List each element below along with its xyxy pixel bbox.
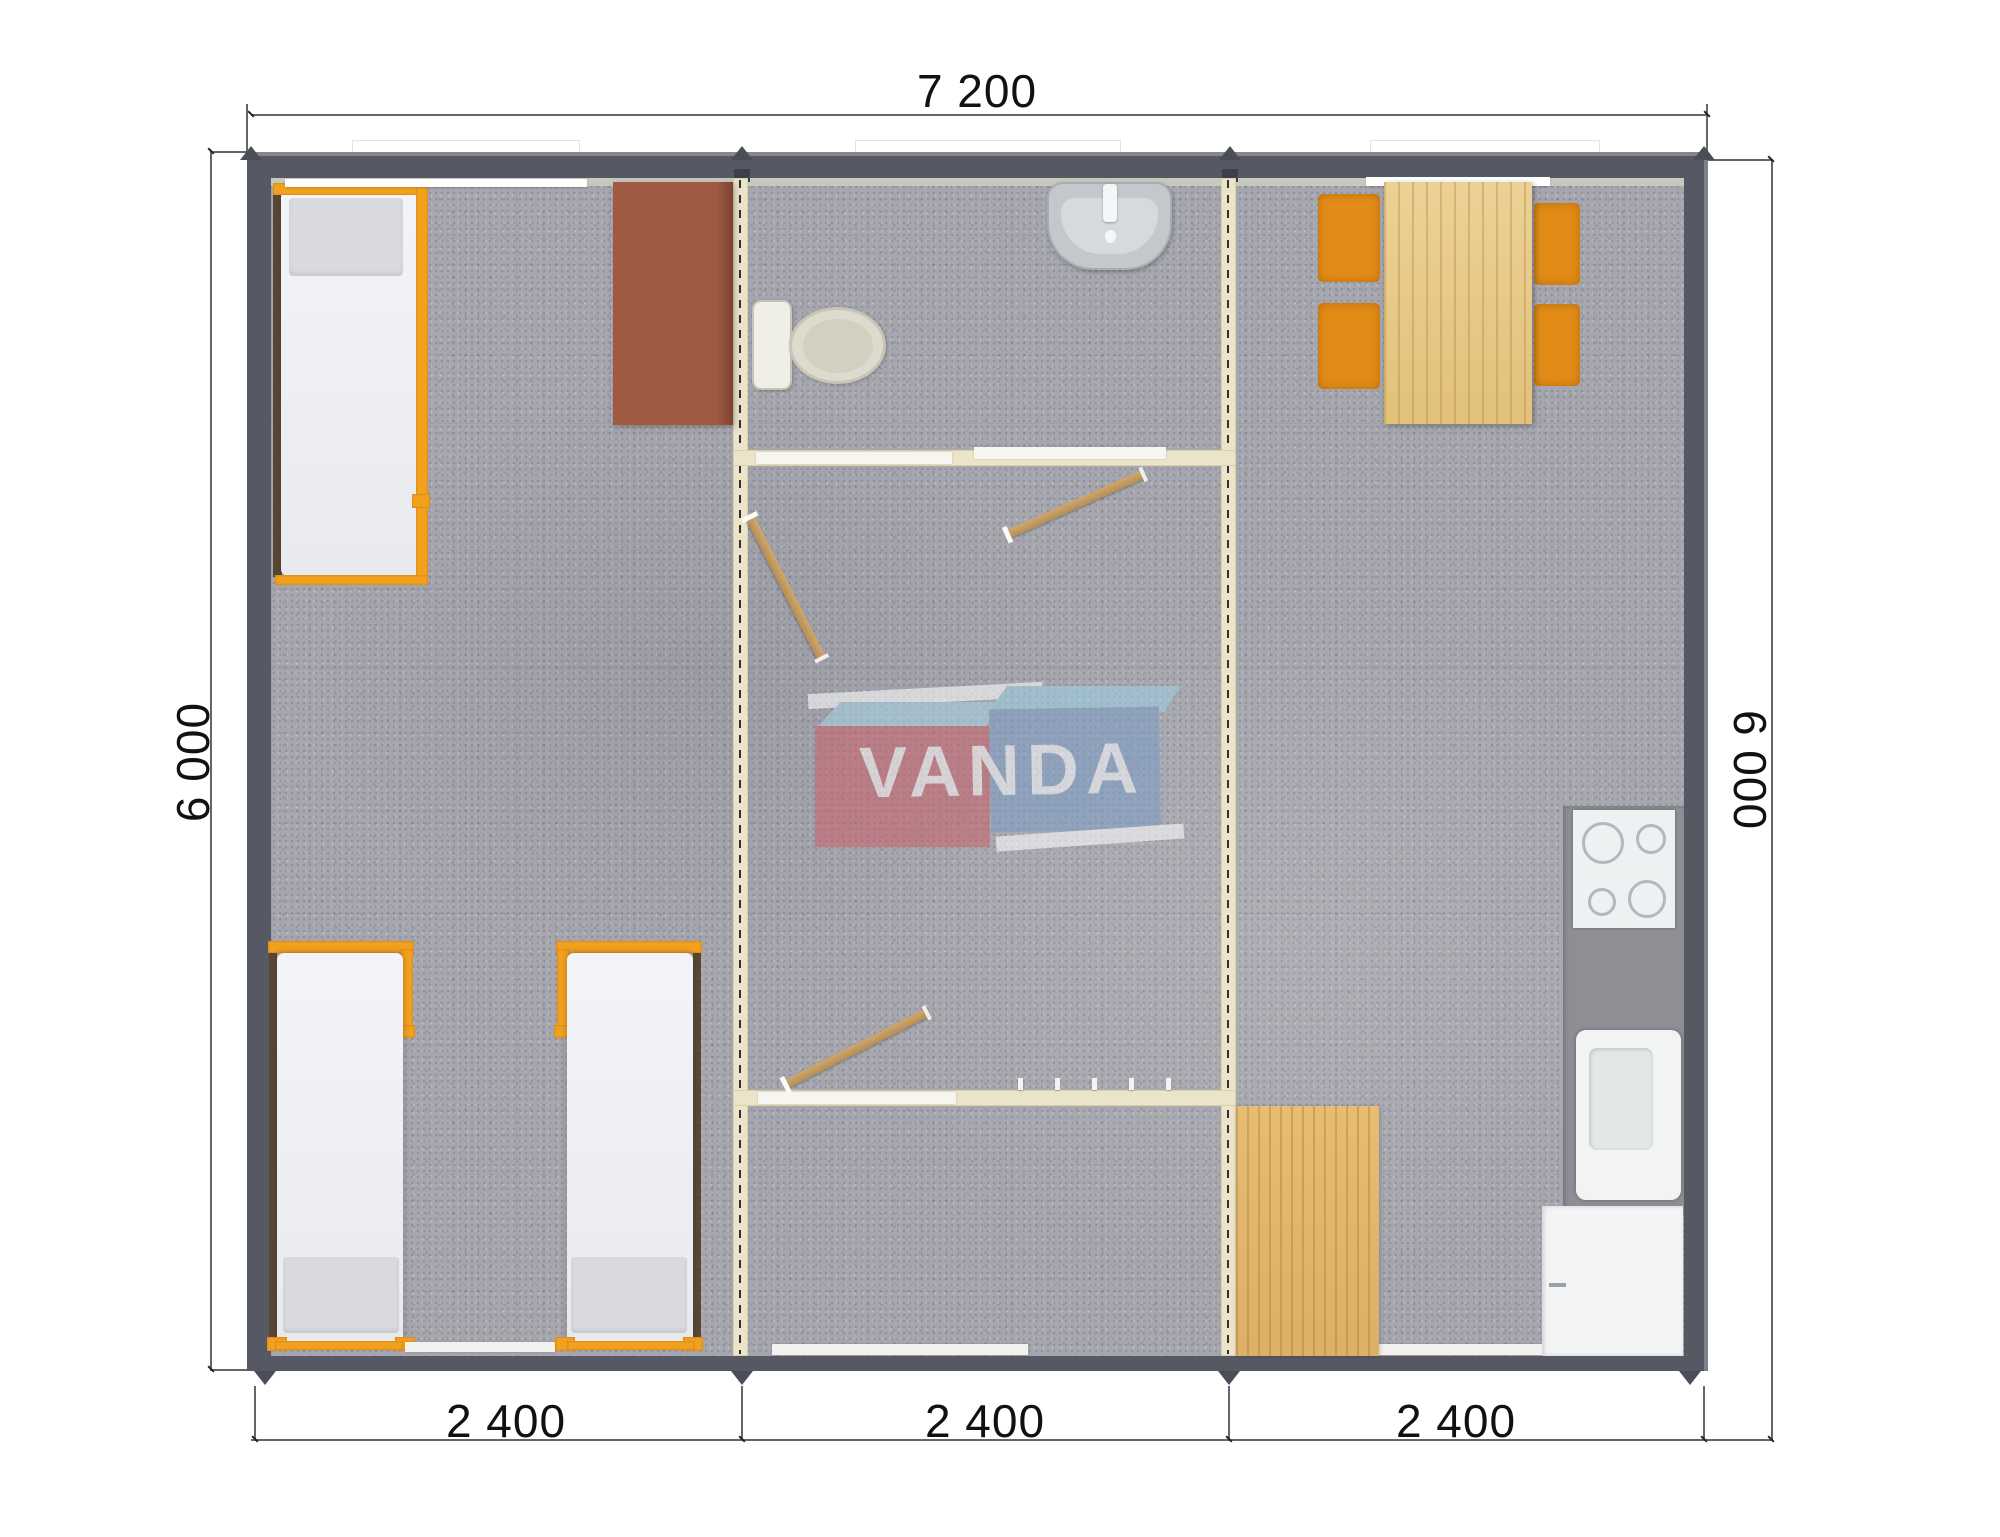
bed-frame — [412, 494, 430, 508]
bed-pillow — [571, 1257, 687, 1333]
wardrobe — [613, 182, 733, 425]
bed-frame — [416, 183, 428, 583]
dimension-arrow-down — [1679, 1371, 1701, 1385]
coat-hook — [1166, 1078, 1171, 1090]
dining-chair — [1534, 203, 1580, 285]
kitchen-cabinet — [1542, 1206, 1683, 1356]
dimension-arrow-down — [1218, 1371, 1240, 1385]
bed-frame — [268, 941, 414, 953]
window-sill — [285, 179, 587, 187]
coat-hook — [1055, 1078, 1060, 1090]
dimension-label-height-right: 6 000 — [1727, 620, 1777, 920]
burner-icon — [1636, 824, 1666, 854]
dimension-arrow-up — [1693, 146, 1715, 160]
bathroom-door-opening — [756, 452, 952, 464]
bed-frame — [556, 941, 702, 953]
dining-chair — [1318, 303, 1380, 389]
extension-line — [254, 1386, 256, 1440]
partition-wall-right — [1221, 178, 1236, 1356]
floor-threshold — [405, 1342, 555, 1352]
dimension-arrow-down — [731, 1371, 753, 1385]
extension-line — [1708, 159, 1772, 161]
bed-frame — [567, 1341, 695, 1350]
coat-hook — [1092, 1078, 1097, 1090]
burner-icon — [1582, 822, 1624, 864]
burner-icon — [1588, 888, 1616, 916]
bathroom-door-opening — [974, 447, 1166, 459]
dimension-label-module-2: 2 400 — [835, 1394, 1135, 1448]
bed-pillow — [283, 1257, 399, 1333]
toilet-seat — [803, 319, 873, 373]
partition-centerline — [1227, 180, 1229, 1354]
dimension-label-module-1: 2 400 — [356, 1394, 656, 1448]
dimension-arrow-up — [240, 146, 262, 160]
partition-wall-left — [733, 178, 748, 1356]
dimension-arrow-down — [254, 1371, 276, 1385]
wall-top-edge — [247, 152, 1708, 156]
wood-floor-mat — [1236, 1106, 1379, 1356]
dimension-arrow-up — [731, 146, 753, 160]
dimension-arrow-up — [1219, 146, 1241, 160]
faucet-handle — [1105, 230, 1116, 243]
dining-chair — [1534, 304, 1580, 386]
floor-threshold — [1365, 1344, 1555, 1355]
partition-centerline — [739, 180, 741, 1354]
bed-frame — [275, 1341, 403, 1350]
dimension-label-height-left: 6 000 — [166, 612, 216, 912]
cabinet-handle — [1549, 1283, 1566, 1287]
toilet-tank — [752, 300, 792, 390]
wall-right-edge — [1704, 152, 1708, 1371]
vanda-watermark: VANDA — [800, 678, 1198, 864]
dining-chair — [1318, 194, 1380, 282]
entry-threshold — [772, 1344, 1028, 1355]
coat-hook — [1129, 1078, 1134, 1090]
bed-frame-rail — [693, 953, 701, 1343]
bed-pillow — [289, 198, 403, 276]
extension-line — [741, 1386, 743, 1440]
logo-text: VANDA — [823, 727, 1180, 815]
hallway-door-opening — [758, 1092, 956, 1104]
burner-icon — [1628, 880, 1666, 918]
kitchen-sink-basin — [1589, 1048, 1653, 1150]
dimension-label-module-3: 2 400 — [1306, 1394, 1606, 1448]
dining-table — [1384, 182, 1532, 424]
bed-frame-rail — [269, 953, 277, 1343]
dimension-label-total-width: 7 200 — [827, 64, 1127, 118]
faucet-icon — [1103, 184, 1117, 222]
logo-red-box-top — [818, 702, 1004, 727]
bed-frame — [275, 575, 428, 585]
extension-line — [1228, 1386, 1230, 1440]
floor-plan: VANDA 7 200 6 000 6 000 2 400 2 400 2 40… — [0, 0, 2000, 1537]
extension-line — [211, 1369, 247, 1371]
extension-line — [1703, 1386, 1705, 1440]
coat-hook — [1018, 1078, 1023, 1090]
